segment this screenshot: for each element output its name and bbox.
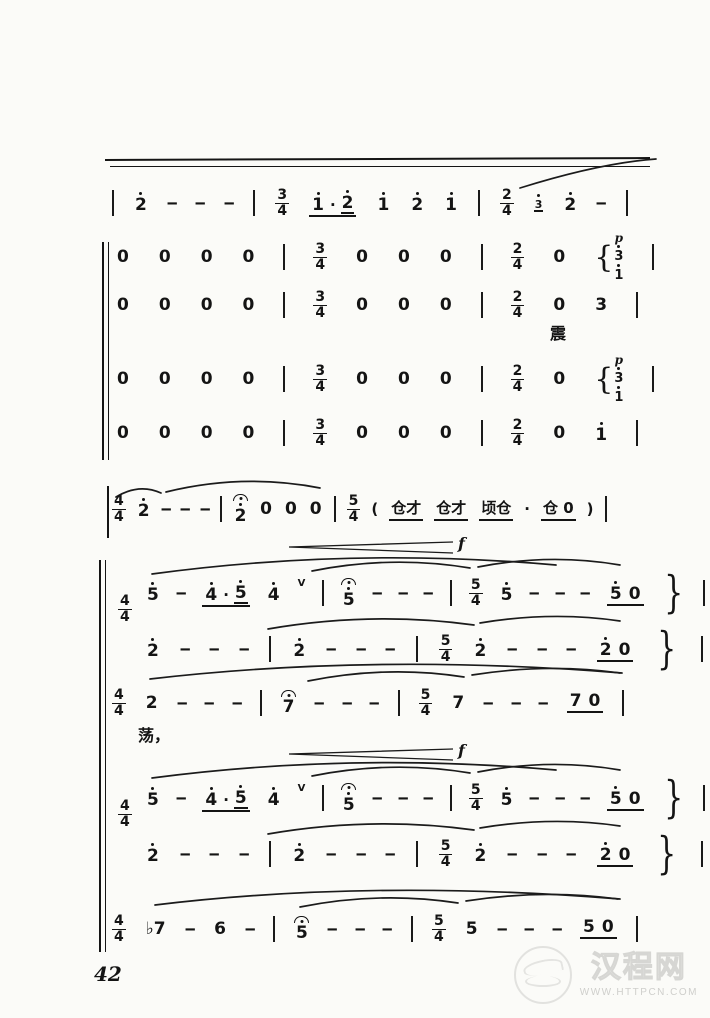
notation-text: · xyxy=(223,586,229,604)
time-sig-numerator: 2 xyxy=(500,188,514,204)
dash-extension: – xyxy=(384,639,396,659)
barline xyxy=(622,690,624,716)
note-digit: 5 xyxy=(342,592,356,609)
time-signature: 54 xyxy=(469,578,483,608)
note: 5 xyxy=(500,582,514,604)
barline xyxy=(701,841,703,867)
note: 3 xyxy=(534,194,544,212)
slur-arc xyxy=(150,664,622,679)
rest-note: 0 xyxy=(552,297,566,314)
note: 3 xyxy=(594,297,608,314)
slur-arc xyxy=(300,898,458,907)
time-sig-numerator: 5 xyxy=(439,839,453,855)
note-digit: 5 xyxy=(295,925,309,942)
chord: {p31 xyxy=(594,232,624,282)
rest-note: 0 xyxy=(355,297,369,314)
dash-extension: – xyxy=(327,919,339,939)
slur-arc xyxy=(155,890,620,905)
music-row-2: 000034000240{p31 xyxy=(116,240,654,274)
music-row-percussion: 442–––200054(仓才仓才顷仓·仓 0) xyxy=(112,492,607,526)
system-bracket-upper xyxy=(102,242,109,460)
rest-note: 0 xyxy=(628,586,642,603)
dynamic-p: p xyxy=(615,232,623,244)
time-signature: 34 xyxy=(313,418,327,448)
note-digit: 0 xyxy=(158,371,172,388)
time-sig-numerator: 3 xyxy=(313,418,327,434)
note: 5 xyxy=(609,581,623,603)
time-sig-denominator: 4 xyxy=(511,306,525,321)
note: 2 xyxy=(292,638,306,660)
note-digit: 2 xyxy=(292,643,306,660)
rest-note: 0 xyxy=(439,249,453,266)
dash-extension: – xyxy=(176,693,188,713)
note-digit: 0 xyxy=(200,371,214,388)
note: 2 xyxy=(292,843,306,865)
rest-note: 0 xyxy=(259,501,273,518)
note-digit: 7 xyxy=(451,695,465,712)
music-row-4: 000034000240{p31 xyxy=(116,362,654,396)
time-sig-denominator: 4 xyxy=(511,380,525,395)
slur-arc xyxy=(480,821,620,828)
crescendo-hairpin xyxy=(289,749,453,760)
dash-extension: – xyxy=(325,639,337,659)
rest-note: 0 xyxy=(355,425,369,442)
note: 5 xyxy=(582,919,596,936)
note: 5 xyxy=(500,787,514,809)
barline xyxy=(703,580,705,606)
beamed-group: 1·2 xyxy=(309,190,356,217)
note: 2 xyxy=(410,192,424,214)
system-end-brace: } xyxy=(664,575,683,610)
slur-arc xyxy=(166,481,320,492)
barline xyxy=(636,916,638,942)
octave-dot xyxy=(617,367,620,370)
rest-note: 0 xyxy=(158,425,172,442)
note-digit: ♭7 xyxy=(145,921,167,938)
slur-arc xyxy=(152,558,556,574)
rest-note: 0 xyxy=(397,425,411,442)
time-sig-numerator: 4 xyxy=(118,799,132,815)
dash-extension: – xyxy=(596,193,608,213)
dash-extension: – xyxy=(536,639,548,659)
dash-extension: – xyxy=(238,844,250,864)
time-signature: 54 xyxy=(469,783,483,813)
note-digit: 0 xyxy=(158,249,172,266)
notation-text: 仓才 xyxy=(391,497,421,518)
note-digit: 0 xyxy=(284,501,298,518)
barline xyxy=(652,244,654,270)
note-digit: 0 xyxy=(116,249,130,266)
dash-extension: – xyxy=(536,844,548,864)
rest-note: 0 xyxy=(242,371,256,388)
beamed-group: 4·5 xyxy=(202,785,249,812)
note: 1 xyxy=(311,192,325,214)
note-digit: 2 xyxy=(599,847,613,864)
note-digit: 0 xyxy=(158,297,172,314)
rest-note: 0 xyxy=(588,693,602,710)
note-digit: 0 xyxy=(552,371,566,388)
time-sig-numerator: 3 xyxy=(275,188,289,204)
note: 2 xyxy=(599,637,613,659)
note-digit: 0 xyxy=(439,249,453,266)
time-signature: 54 xyxy=(439,634,453,664)
slur-arc xyxy=(312,562,470,571)
octave-dot xyxy=(617,386,620,389)
beamed-group: 50 xyxy=(607,786,644,811)
dash-extension: – xyxy=(199,499,211,519)
time-sig-numerator: 2 xyxy=(511,290,525,306)
rest-note: 0 xyxy=(116,425,130,442)
rest-note: 0 xyxy=(552,249,566,266)
note-digit: 2 xyxy=(134,197,148,214)
note-digit: 0 xyxy=(397,425,411,442)
octave-dot xyxy=(617,245,620,248)
note-digit: 5 xyxy=(500,587,514,604)
dash-extension: – xyxy=(355,639,367,659)
time-signature: 24 xyxy=(511,418,525,448)
note: 5 xyxy=(146,582,160,604)
notation-text: ( xyxy=(371,500,378,518)
barline xyxy=(450,785,452,811)
note: 2 xyxy=(146,638,160,660)
note-digit: 2 xyxy=(599,642,613,659)
barline xyxy=(416,841,418,867)
fermata-icon xyxy=(341,783,356,790)
time-sig-numerator: 4 xyxy=(112,688,126,704)
music-row-voice2: 2–––2–––542–––20} xyxy=(146,837,703,871)
note-digit: 5 xyxy=(342,797,356,814)
note-digit: 2 xyxy=(473,643,487,660)
note: 2 xyxy=(341,190,355,214)
scanned-score-page: 2–––341·21212432– 000034000240{p31 00003… xyxy=(0,0,710,1018)
note: 1 xyxy=(594,422,608,444)
note: 1 xyxy=(444,192,458,214)
rest-note: 0 xyxy=(618,642,632,659)
rest-note: 0 xyxy=(200,371,214,388)
rest-note: 0 xyxy=(116,249,130,266)
note-digit: 5 xyxy=(234,585,248,604)
note-digit: 5 xyxy=(146,587,160,604)
note-digit: 5 xyxy=(465,921,479,938)
note-digit: 0 xyxy=(628,586,642,603)
note: 2 xyxy=(145,695,159,712)
barline xyxy=(269,636,271,662)
time-sig-denominator: 4 xyxy=(118,815,132,830)
time-sig-numerator: 4 xyxy=(112,494,126,510)
note-digit: 2 xyxy=(146,643,160,660)
dash-extension: – xyxy=(510,693,522,713)
note-digit: 1 xyxy=(311,197,325,214)
note-digit: 6 xyxy=(213,921,227,938)
barline xyxy=(703,785,705,811)
note-digit: 0 xyxy=(355,371,369,388)
music-row-3: 0000340002403 xyxy=(116,288,638,322)
note-digit: 2 xyxy=(563,197,577,214)
top-rule-1 xyxy=(105,157,650,161)
note-digit: 5 xyxy=(609,586,623,603)
dash-extension: – xyxy=(566,639,578,659)
top-rule-2 xyxy=(110,166,650,167)
beamed-group: 仓 0 xyxy=(541,497,576,521)
note-digit: 1 xyxy=(613,391,624,404)
rest-note: 0 xyxy=(397,371,411,388)
slur-arc xyxy=(152,763,556,778)
barline xyxy=(481,420,483,446)
note-digit: 3 xyxy=(594,297,608,314)
time-signature: 34 xyxy=(275,188,289,218)
note: 1 xyxy=(613,386,624,404)
slur-arc xyxy=(466,894,618,901)
note: 2 xyxy=(146,843,160,865)
dash-extension: – xyxy=(554,583,566,603)
dash-extension: – xyxy=(372,583,384,603)
slur-arc xyxy=(480,616,620,623)
note-digit: 1 xyxy=(376,197,390,214)
barline xyxy=(112,190,114,216)
dash-extension: – xyxy=(179,499,191,519)
note: 1 xyxy=(376,192,390,214)
time-sig-denominator: 4 xyxy=(469,594,483,609)
time-sig-denominator: 4 xyxy=(511,434,525,449)
dash-extension: – xyxy=(537,693,549,713)
slur-arc xyxy=(472,668,620,675)
dash-extension: – xyxy=(203,693,215,713)
rest-note: 0 xyxy=(309,501,323,518)
time-sig-denominator: 4 xyxy=(118,610,132,625)
note-digit: 0 xyxy=(158,425,172,442)
music-row-melody: 442–––7–––547–––70 xyxy=(112,686,624,720)
note-digit: 0 xyxy=(355,249,369,266)
dash-extension: – xyxy=(166,193,178,213)
time-signature: 24 xyxy=(511,242,525,272)
note-digit: 0 xyxy=(552,425,566,442)
dash-extension: – xyxy=(382,919,394,939)
note-digit: 2 xyxy=(146,848,160,865)
time-signature: 54 xyxy=(347,494,361,524)
note: 2 xyxy=(473,843,487,865)
dash-extension: – xyxy=(355,844,367,864)
time-sig-numerator: 3 xyxy=(313,364,327,380)
note-digit: 0 xyxy=(628,791,642,808)
music-row-voice1: 5–4·54V5–––545–––50} xyxy=(146,576,705,610)
time-signature: 44 xyxy=(112,688,126,718)
beamed-group: 20 xyxy=(597,637,634,662)
music-row-voice1: 5–4·54V5–––545–––50} xyxy=(146,781,705,815)
beamed-group: 70 xyxy=(567,693,604,713)
note: ♭7 xyxy=(145,921,167,938)
barline xyxy=(701,636,703,662)
notation-text: 仓才 xyxy=(436,497,466,518)
barline xyxy=(416,636,418,662)
dash-extension: – xyxy=(482,693,494,713)
time-sig-denominator: 4 xyxy=(112,510,126,525)
barline xyxy=(283,420,285,446)
time-sig-numerator: 5 xyxy=(419,688,433,704)
stave-line-rowA xyxy=(107,486,109,538)
shared-time-signature: 44 xyxy=(118,592,132,626)
rest-note: 0 xyxy=(628,791,642,808)
rest-note: 0 xyxy=(284,501,298,518)
note: 2 xyxy=(233,494,248,525)
watermark-site-name: 汉程网 xyxy=(591,953,687,983)
time-signature: 54 xyxy=(439,839,453,869)
barline xyxy=(260,690,262,716)
system-end-brace: } xyxy=(658,631,677,666)
note-digit: 7 xyxy=(569,693,583,710)
rest-note: 0 xyxy=(552,425,566,442)
slur-arc xyxy=(268,824,474,834)
note: 2 xyxy=(137,498,151,520)
dash-extension: – xyxy=(244,919,256,939)
music-row-5: 0000340002401 xyxy=(116,416,638,450)
note-digit: 0 xyxy=(355,297,369,314)
note-digit: 0 xyxy=(200,249,214,266)
time-sig-denominator: 4 xyxy=(432,930,446,945)
barline xyxy=(481,244,483,270)
notation-text: · xyxy=(524,500,530,518)
beamed-group: 20 xyxy=(597,842,634,867)
note: 3 xyxy=(613,245,624,263)
time-sig-numerator: 5 xyxy=(439,634,453,650)
note-digit: 0 xyxy=(601,919,615,936)
note: 4 xyxy=(267,582,281,604)
slur-arc xyxy=(268,619,474,629)
slur-arc xyxy=(520,159,656,188)
rest-note: 0 xyxy=(439,297,453,314)
system-end-brace: } xyxy=(664,780,683,815)
time-sig-numerator: 5 xyxy=(347,494,361,510)
dash-extension: – xyxy=(507,844,519,864)
rest-note: 0 xyxy=(158,371,172,388)
slur-arc xyxy=(478,764,620,772)
time-signature: 24 xyxy=(500,188,514,218)
slur-arc xyxy=(312,767,470,776)
notation-text: · xyxy=(223,791,229,809)
watermark: 汉程网 WWW.HTTPCN.COM xyxy=(514,946,698,1004)
note-digit: 3 xyxy=(613,372,624,385)
dash-extension: – xyxy=(551,919,563,939)
time-sig-numerator: 5 xyxy=(432,914,446,930)
time-sig-numerator: 2 xyxy=(511,242,525,258)
breath-mark: V xyxy=(298,578,306,589)
note-digit: 0 xyxy=(439,297,453,314)
rest-note: 0 xyxy=(200,425,214,442)
octave-dot xyxy=(537,194,540,197)
note-digit: 3 xyxy=(613,250,624,263)
shared-time-signature: 44 xyxy=(118,797,132,831)
barline xyxy=(411,916,413,942)
barline xyxy=(481,292,483,318)
note-digit: 3 xyxy=(534,199,544,212)
note: 5 xyxy=(609,786,623,808)
note-digit: 0 xyxy=(116,371,130,388)
time-sig-denominator: 4 xyxy=(419,704,433,719)
breath-mark: V xyxy=(298,783,306,794)
rest-note: 0 xyxy=(601,919,615,936)
note-digit: 0 xyxy=(397,371,411,388)
note-digit: 0 xyxy=(242,371,256,388)
system-bracket-lower xyxy=(99,560,106,952)
dash-extension: – xyxy=(175,788,187,808)
octave-dot xyxy=(617,264,620,267)
dash-extension: – xyxy=(523,919,535,939)
time-signature: 34 xyxy=(313,364,327,394)
note-digit: 2 xyxy=(234,508,248,525)
note-digit: 0 xyxy=(439,371,453,388)
barline xyxy=(283,292,285,318)
dash-extension: – xyxy=(397,788,409,808)
fermata-icon xyxy=(233,494,248,501)
fermata-icon xyxy=(294,916,309,923)
note-digit: 2 xyxy=(292,848,306,865)
time-sig-numerator: 3 xyxy=(313,242,327,258)
rest-note: 0 xyxy=(397,297,411,314)
barline xyxy=(636,420,638,446)
note-digit: 0 xyxy=(439,425,453,442)
barline xyxy=(283,244,285,270)
note-digit: 4 xyxy=(204,792,218,809)
dash-extension: – xyxy=(397,583,409,603)
note-digit: 0 xyxy=(618,642,632,659)
note: 1 xyxy=(613,264,624,282)
note-digit: 1 xyxy=(613,269,624,282)
notation-text: · xyxy=(330,196,336,214)
note: 5 xyxy=(294,916,309,942)
dash-extension: – xyxy=(325,844,337,864)
dash-extension: – xyxy=(341,693,353,713)
barline xyxy=(220,496,222,522)
time-sig-denominator: 4 xyxy=(112,930,126,945)
note-digit: 5 xyxy=(582,919,596,936)
rest-note: 0 xyxy=(439,425,453,442)
barline xyxy=(322,785,324,811)
note: 2 xyxy=(473,638,487,660)
barline xyxy=(334,496,336,522)
note-digit: 4 xyxy=(267,587,281,604)
dash-extension: – xyxy=(496,919,508,939)
rest-note: 0 xyxy=(200,249,214,266)
dash-extension: – xyxy=(160,499,172,519)
chord-brace: { xyxy=(594,366,613,393)
dash-extension: – xyxy=(529,583,541,603)
time-sig-numerator: 3 xyxy=(313,290,327,306)
rest-note: 0 xyxy=(116,297,130,314)
barline xyxy=(626,190,628,216)
note-digit: 0 xyxy=(242,425,256,442)
time-signature: 34 xyxy=(313,290,327,320)
barline xyxy=(450,580,452,606)
note: 5 xyxy=(234,580,248,604)
time-sig-denominator: 4 xyxy=(439,650,453,665)
barline xyxy=(253,190,255,216)
time-signature: 44 xyxy=(118,799,132,829)
slur-arc xyxy=(308,672,464,681)
beamed-group: 仓才 xyxy=(389,497,423,521)
time-sig-denominator: 4 xyxy=(112,704,126,719)
dash-extension: – xyxy=(566,844,578,864)
note-digit: 0 xyxy=(309,501,323,518)
time-signature: 54 xyxy=(432,914,446,944)
note: 4 xyxy=(204,787,218,809)
beamed-group: 50 xyxy=(580,919,617,939)
note-digit: 2 xyxy=(137,503,151,520)
note: 5 xyxy=(341,578,356,609)
time-sig-numerator: 4 xyxy=(112,914,126,930)
note-digit: 0 xyxy=(355,425,369,442)
note-digit: 2 xyxy=(473,848,487,865)
note: 7 xyxy=(281,690,296,716)
beamed-group: 顷仓 xyxy=(479,497,513,521)
